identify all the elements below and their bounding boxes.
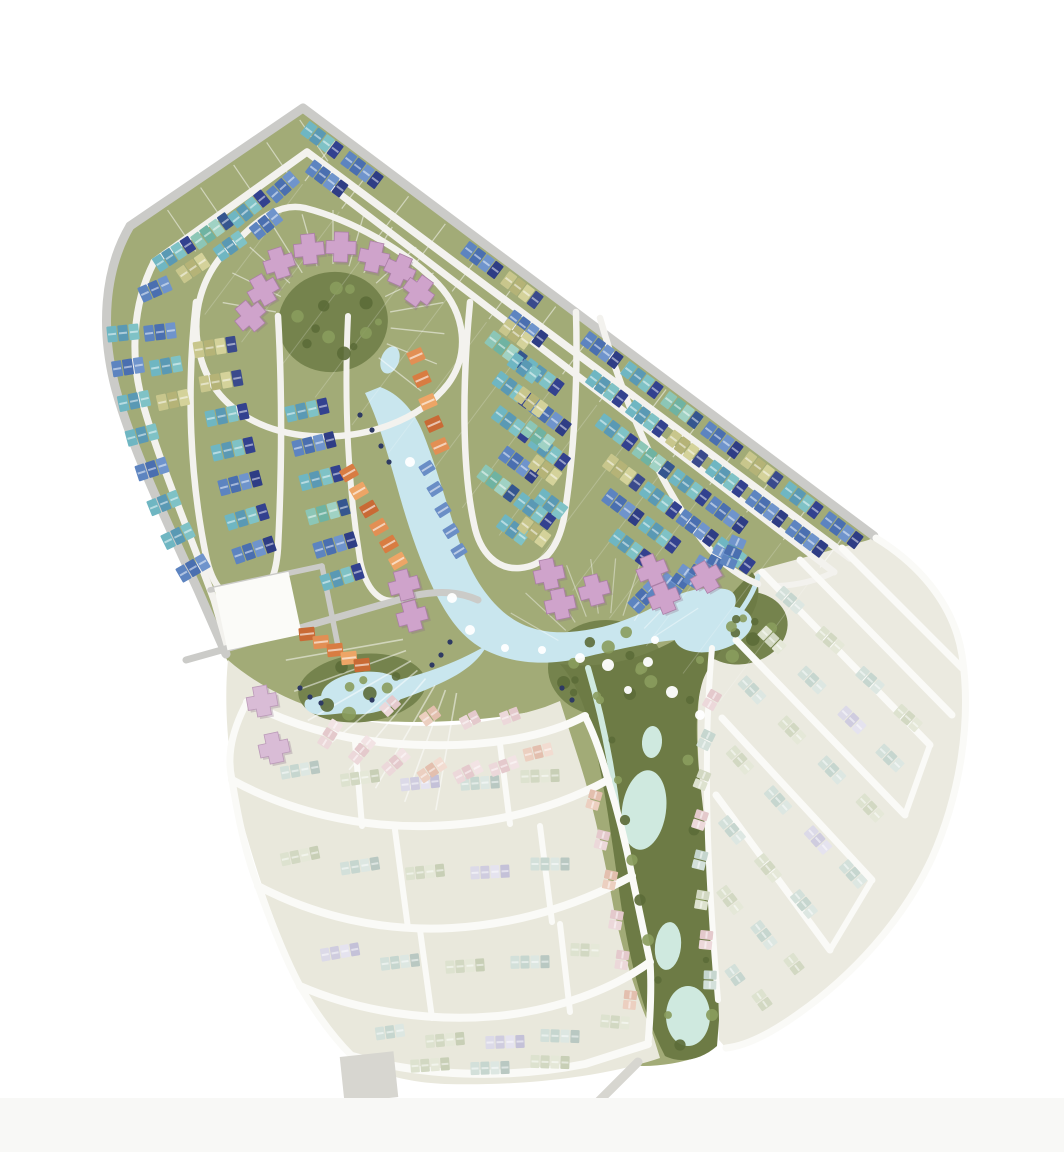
plaza-dot: [602, 659, 614, 671]
tree: [322, 331, 335, 344]
tree: [570, 689, 578, 697]
tree: [342, 707, 356, 721]
tree: [634, 894, 645, 905]
tree: [609, 737, 616, 744]
plaza-dot: [695, 710, 705, 720]
tree: [360, 296, 373, 309]
plaza-dot: [643, 657, 653, 667]
southwest-road-stub: [340, 1051, 399, 1102]
housing-row: [106, 323, 139, 342]
plaza-dot: [501, 644, 509, 652]
shrub-dot: [429, 662, 434, 667]
tree: [337, 347, 351, 361]
shrub-dot: [369, 427, 374, 432]
tree: [359, 676, 367, 684]
tree: [664, 1011, 672, 1019]
tree: [683, 755, 694, 766]
tree: [739, 614, 747, 622]
tree: [706, 1009, 718, 1021]
tree: [596, 696, 604, 704]
tree: [318, 300, 329, 311]
tree: [732, 615, 740, 623]
housing-row: [570, 943, 599, 957]
tree: [291, 310, 304, 323]
tree: [635, 665, 645, 675]
shrub-dot: [297, 685, 302, 690]
plaza-dot: [575, 653, 585, 663]
shrub-dot: [307, 694, 312, 699]
shrub-dot: [559, 685, 564, 690]
tree: [345, 284, 355, 294]
tree: [620, 815, 630, 825]
tree: [751, 618, 759, 626]
tree: [626, 854, 637, 865]
shrub-dot: [386, 459, 391, 464]
tree: [703, 957, 709, 963]
tree: [302, 339, 311, 348]
tree: [625, 651, 634, 660]
page-bottom-strip: [0, 1098, 1064, 1152]
tree: [614, 776, 622, 784]
tree: [350, 343, 357, 350]
tree: [686, 696, 694, 704]
shrub-dot: [357, 412, 362, 417]
shrub-dot: [447, 639, 452, 644]
plaza-dot: [624, 686, 632, 694]
shrub-dot: [369, 697, 374, 702]
plaza-dot: [447, 593, 457, 603]
tree: [330, 282, 343, 295]
tree: [696, 656, 704, 664]
tree: [726, 650, 739, 663]
tree: [585, 637, 595, 647]
tree: [311, 324, 320, 333]
tree: [674, 1039, 685, 1050]
tree: [602, 640, 615, 653]
shrub-dot: [438, 652, 443, 657]
corridor-pond-3: [666, 986, 710, 1046]
tree: [345, 682, 355, 692]
tree: [642, 934, 654, 946]
masterplan-map: [0, 0, 1064, 1152]
plaza-dot: [538, 646, 546, 654]
tree: [620, 626, 632, 638]
masterplan-canvas: [0, 0, 1064, 1152]
tree: [571, 676, 578, 683]
plaza-dot: [651, 636, 659, 644]
orange-villa-unit: [353, 658, 370, 673]
shrub-dot: [569, 697, 574, 702]
tree: [382, 683, 393, 694]
tree: [654, 976, 661, 983]
plaza-dot: [465, 625, 475, 635]
shrub-dot: [378, 443, 383, 448]
tree: [375, 318, 382, 325]
tree: [644, 675, 657, 688]
shrub-dot: [318, 700, 323, 705]
tree: [360, 327, 372, 339]
plaza-dot: [405, 457, 415, 467]
housing-row: [600, 1014, 630, 1029]
tree: [363, 687, 377, 701]
tree: [392, 672, 401, 681]
plaza-dot: [666, 686, 678, 698]
